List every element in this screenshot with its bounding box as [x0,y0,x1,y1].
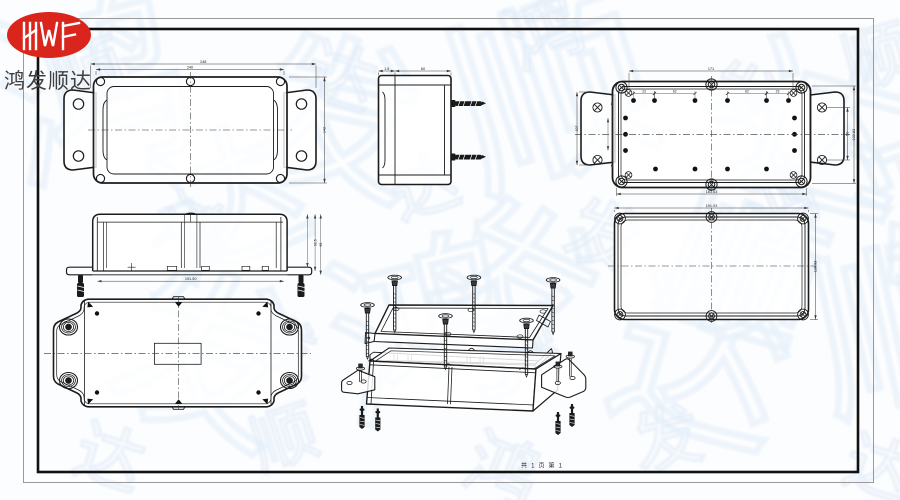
svg-text:100.83: 100.83 [852,129,856,141]
svg-text:171: 171 [708,67,714,71]
svg-text:50: 50 [846,132,850,136]
svg-text:60: 60 [421,67,425,71]
svg-text:62: 62 [745,89,749,93]
svg-text:240: 240 [187,65,193,69]
svg-text:107: 107 [575,125,579,131]
svg-text:248: 248 [200,60,206,64]
svg-text:65: 65 [319,243,323,247]
svg-text:183.63: 183.63 [706,190,718,194]
svg-text:23: 23 [776,89,780,93]
svg-text:鸿发顺达: 鸿发顺达 [4,70,92,93]
svg-text:1.5: 1.5 [384,67,389,71]
svg-text:62: 62 [673,89,677,93]
svg-text:191.93: 191.93 [706,204,718,208]
svg-text:142: 142 [323,127,327,133]
svg-text:128.93: 128.93 [814,261,818,273]
svg-text:191.50: 191.50 [185,277,197,281]
svg-text:共 1 页 第 1: 共 1 页 第 1 [521,462,563,470]
svg-text:62.5: 62.5 [313,239,317,246]
svg-text:23: 23 [642,89,646,93]
